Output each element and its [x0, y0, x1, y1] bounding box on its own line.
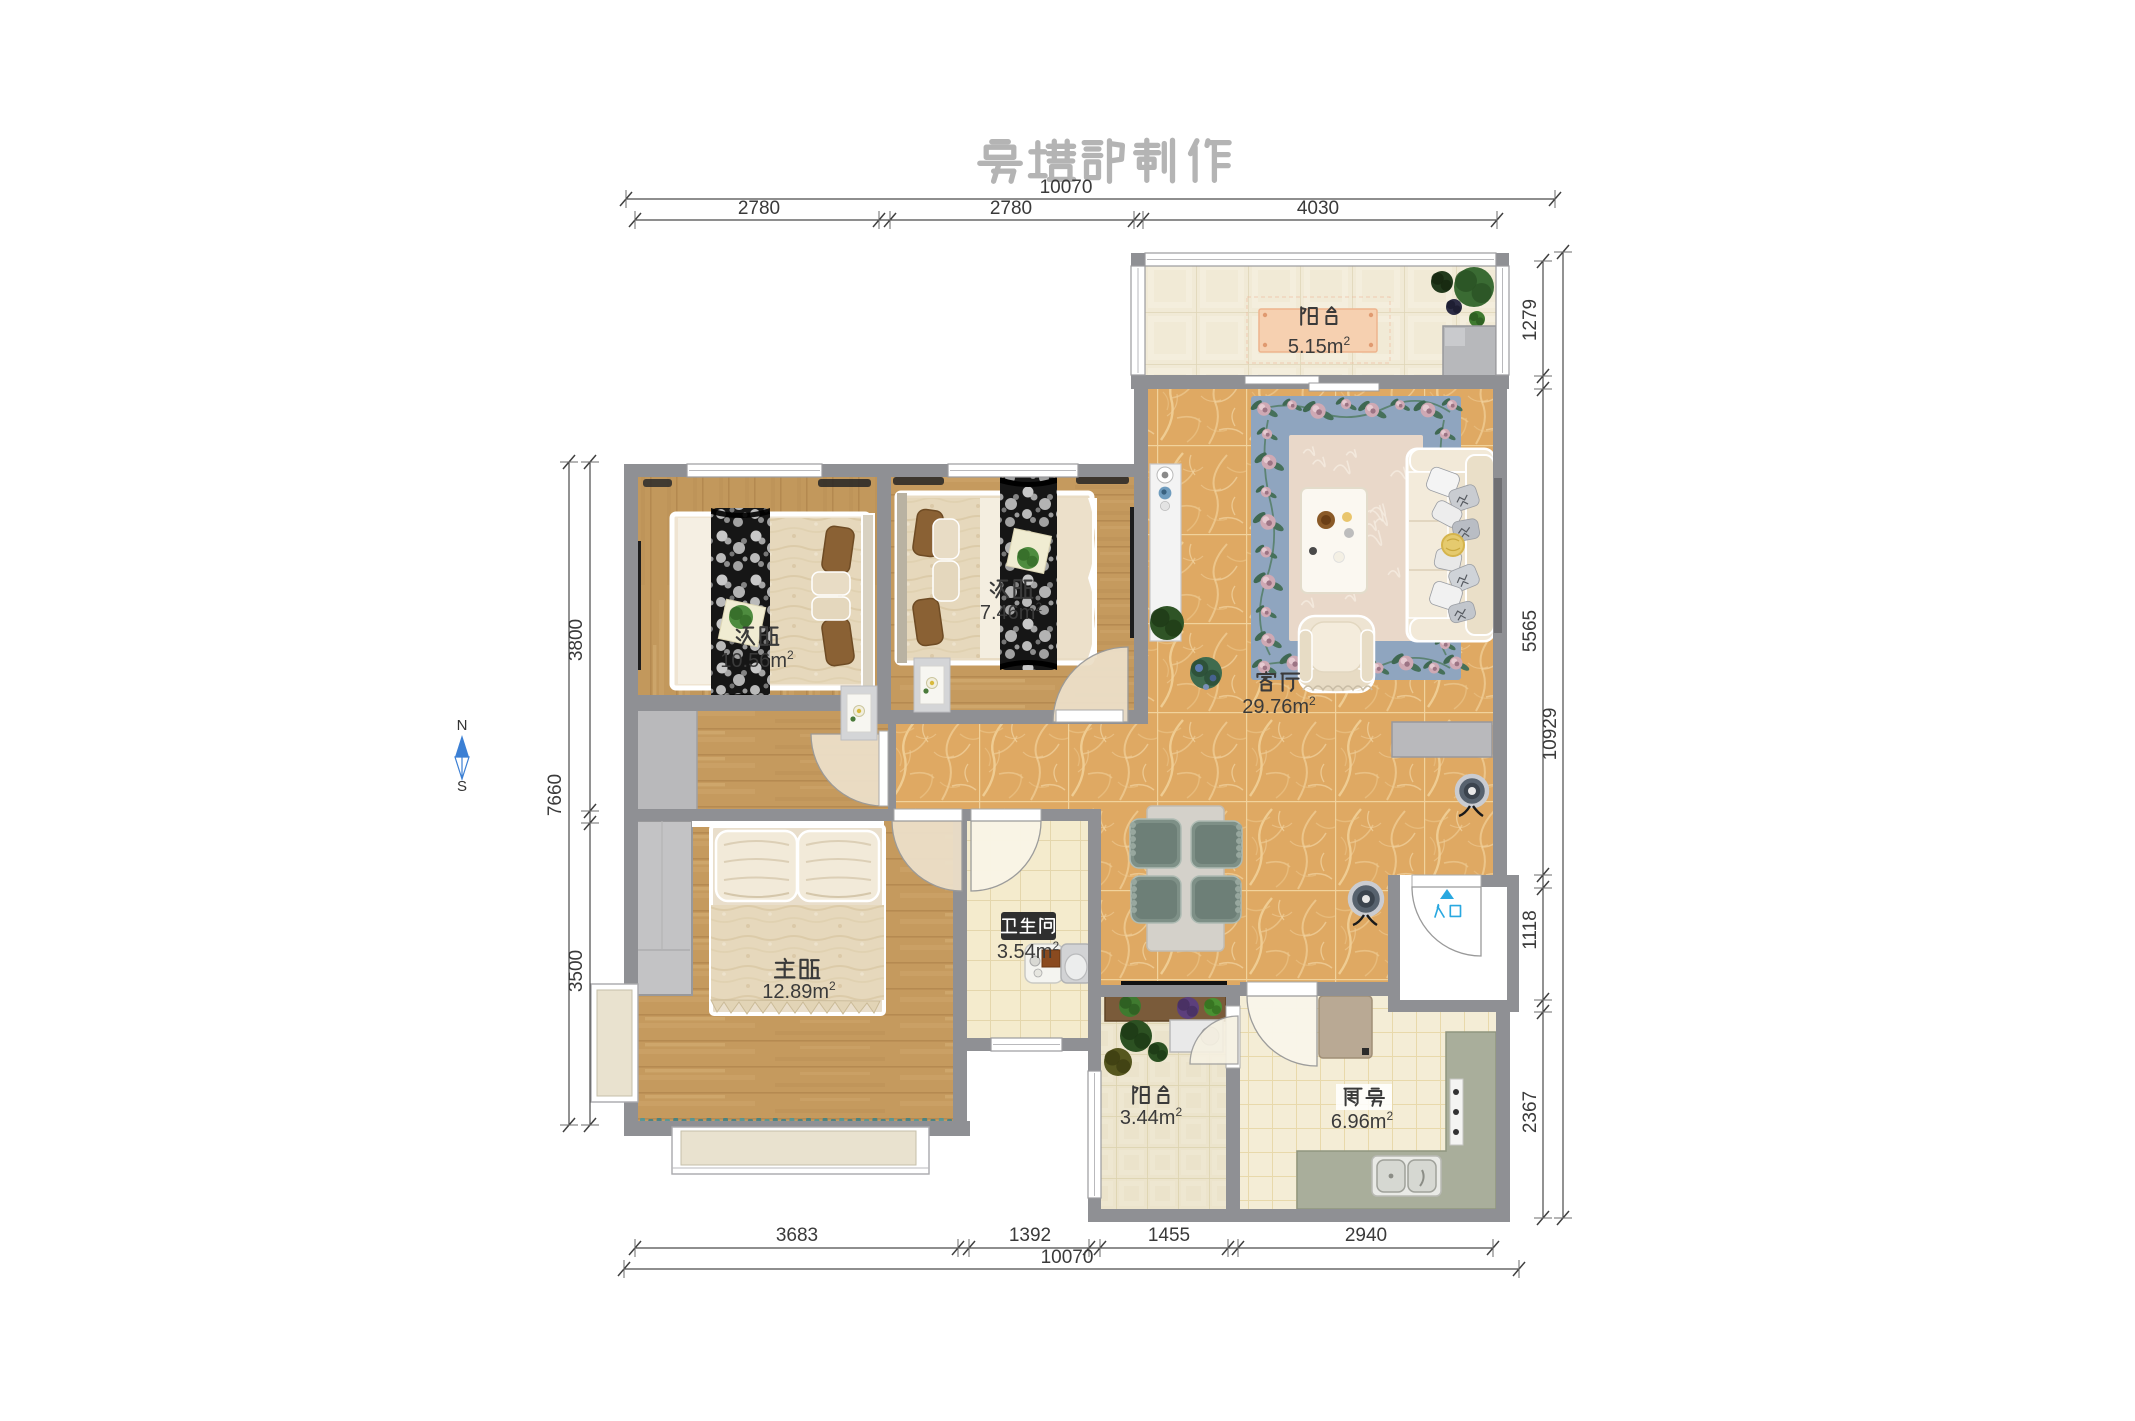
svg-text:1455: 1455: [1148, 1225, 1190, 1246]
svg-text:3800: 3800: [566, 619, 587, 661]
svg-text:1118: 1118: [1520, 910, 1541, 949]
svg-text:5.15m2: 5.15m2: [1288, 334, 1351, 358]
svg-text:6.96m2: 6.96m2: [1331, 1109, 1394, 1133]
svg-text:1392: 1392: [1009, 1225, 1051, 1246]
svg-text:3.54m2: 3.54m2: [997, 939, 1060, 963]
svg-text:3.44m2: 3.44m2: [1120, 1105, 1183, 1129]
svg-text:4030: 4030: [1297, 198, 1339, 219]
svg-text:7.46m2: 7.46m2: [980, 600, 1043, 624]
svg-text:2940: 2940: [1345, 1225, 1387, 1246]
svg-text:10070: 10070: [1040, 177, 1093, 198]
svg-text:12.89m2: 12.89m2: [762, 979, 836, 1003]
svg-text:3500: 3500: [566, 950, 587, 992]
svg-text:2780: 2780: [738, 198, 780, 219]
svg-text:3683: 3683: [776, 1225, 818, 1246]
svg-text:2780: 2780: [990, 198, 1032, 219]
svg-text:1279: 1279: [1520, 299, 1541, 341]
svg-text:29.76m2: 29.76m2: [1242, 694, 1316, 718]
svg-text:N: N: [457, 717, 468, 734]
svg-text:10929: 10929: [1540, 708, 1561, 761]
svg-text:7660: 7660: [545, 774, 566, 816]
svg-text:2367: 2367: [1520, 1091, 1541, 1133]
svg-text:S: S: [457, 778, 467, 795]
svg-text:5565: 5565: [1520, 610, 1541, 652]
svg-text:10070: 10070: [1041, 1247, 1094, 1268]
svg-text:10.56m2: 10.56m2: [720, 648, 794, 672]
